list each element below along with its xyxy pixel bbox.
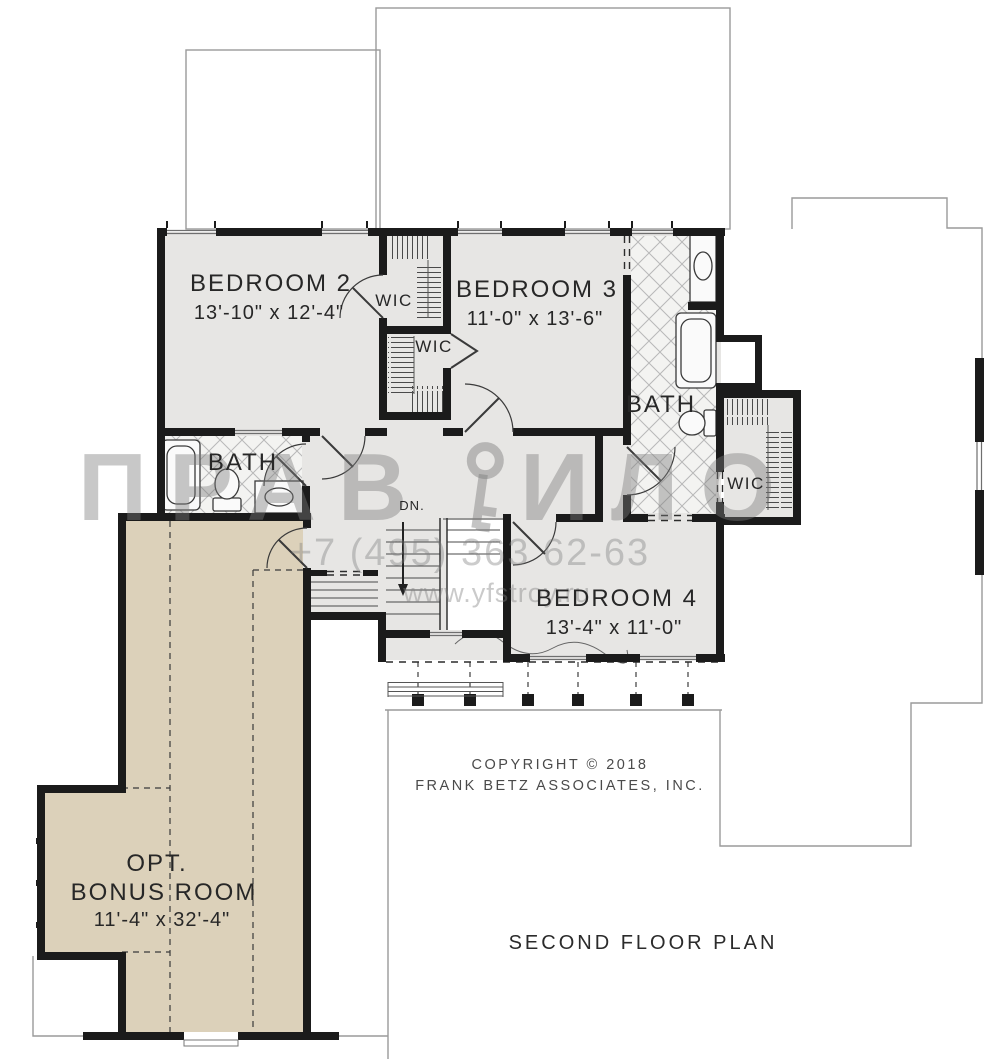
bath-right-label: BATH xyxy=(626,391,696,418)
bonus-name-line1: OPT. xyxy=(126,850,187,877)
wic1-label: WIC xyxy=(375,291,413,310)
bedroom2-dims: 13'-10" x 12'-4" xyxy=(194,302,344,324)
linen-nook-floor xyxy=(723,342,755,383)
floor-plan-page: ПРАВ ИЛО +7 (495) 363 62-63 www.yfstroy.… xyxy=(0,0,1000,1059)
stair-notch xyxy=(311,620,378,660)
bedroom4-name: BEDROOM 4 xyxy=(536,585,698,612)
stairs-down-label: DN. xyxy=(399,498,424,513)
bathtub-right xyxy=(676,313,716,388)
bedroom2-name: BEDROOM 2 xyxy=(190,270,352,297)
vanity-right xyxy=(690,233,716,302)
sheet-title: SECOND FLOOR PLAN xyxy=(509,932,778,954)
bedroom3-dims: 11'-0" x 13'-6" xyxy=(467,308,604,330)
wic3-label: WIC xyxy=(727,474,765,493)
floor-plan-drawing: ПРАВ ИЛО +7 (495) 363 62-63 www.yfstroy.… xyxy=(0,0,1000,1059)
porch-railing xyxy=(388,682,503,697)
bath-left-label: BATH xyxy=(208,449,278,476)
bonus-dims: 11'-4" x 32'-4" xyxy=(94,909,231,931)
wic2-label: WIC xyxy=(415,337,453,356)
bonus-name-line2: BONUS ROOM xyxy=(71,879,258,906)
bedroom3-name: BEDROOM 3 xyxy=(456,276,618,303)
copyright-line1: COPYRIGHT © 2018 xyxy=(472,757,649,773)
porch-below xyxy=(386,662,720,706)
bedroom4-dims: 13'-4" x 11'-0" xyxy=(546,617,683,639)
watermark-phone: +7 (495) 363 62-63 xyxy=(290,532,650,574)
copyright-line2: FRANK BETZ ASSOCIATES, INC. xyxy=(415,778,705,794)
